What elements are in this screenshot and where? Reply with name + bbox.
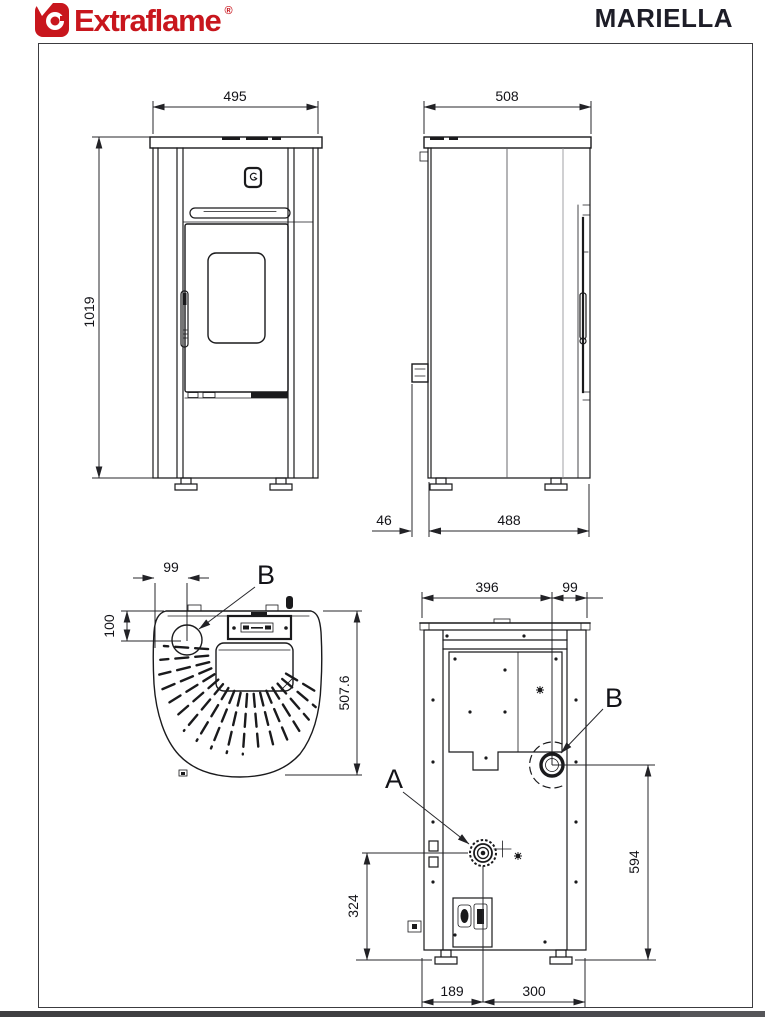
hopper-lid-detail xyxy=(219,650,292,690)
dim-edge-to-intake: 189 xyxy=(440,983,464,999)
top-tab-right xyxy=(581,623,590,630)
back-view: 396 99 B A xyxy=(345,579,656,1007)
label-flue-top: B xyxy=(257,560,275,590)
flower-screw xyxy=(536,686,544,694)
air-grille xyxy=(190,208,290,218)
foot-tab-mark xyxy=(181,772,185,775)
body-outline xyxy=(428,148,590,478)
dim-extension-lines xyxy=(153,101,318,134)
control-panel-tab xyxy=(251,612,267,616)
flower-screw xyxy=(514,852,522,860)
top-body-outline xyxy=(153,611,322,777)
dim-extension-lines xyxy=(356,853,468,960)
bottom-bar xyxy=(0,1011,765,1017)
front-view: 495 1019 xyxy=(81,88,322,490)
dim-side-depth: 488 xyxy=(497,512,521,528)
door-window xyxy=(208,253,265,343)
top-vent-slots xyxy=(222,137,281,140)
label-air-intake: A xyxy=(385,764,403,794)
adjustable-feet xyxy=(430,478,567,490)
door-latch-mid xyxy=(203,393,215,398)
dim-intake-to-edge: 300 xyxy=(522,983,546,999)
side-plate-mark xyxy=(412,924,417,929)
top-tab-left xyxy=(420,623,429,630)
side-columns xyxy=(153,148,318,478)
technical-drawing: 495 1019 508 xyxy=(0,0,765,1017)
hinge-tab xyxy=(188,605,201,611)
top-vent-slots xyxy=(430,137,458,140)
brand-badge xyxy=(245,168,261,187)
display-segments xyxy=(243,626,271,630)
top-cross-bar xyxy=(443,640,567,649)
dim-flue-offset-x: 99 xyxy=(163,559,179,575)
vent-slots xyxy=(159,646,320,754)
panel-screw xyxy=(232,626,236,630)
rear-air-intake-stub xyxy=(412,364,428,382)
screw-dots xyxy=(431,634,577,943)
adjustable-feet xyxy=(435,950,572,964)
column-bracket xyxy=(429,857,438,867)
rear-bracket xyxy=(420,152,428,161)
drawing-frame xyxy=(39,44,753,1008)
air-intake-connector xyxy=(470,840,511,866)
dim-rear-clearance: 46 xyxy=(376,512,392,528)
dim-extension-lines xyxy=(92,137,153,478)
dim-front-width: 495 xyxy=(223,88,247,104)
dim-flue-height: 594 xyxy=(626,850,642,874)
antenna-knob xyxy=(286,596,293,609)
fire-door xyxy=(185,224,288,392)
dim-left-to-flue: 396 xyxy=(475,579,499,595)
side-view: 508 46 488 xyxy=(372,88,591,537)
dim-flue-offset-y: 100 xyxy=(101,614,117,638)
hinge-tab xyxy=(266,605,278,611)
dim-extension-lines xyxy=(155,583,187,648)
door-handle-grip xyxy=(183,293,187,305)
dim-front-height: 1019 xyxy=(81,296,97,327)
leader-air-intake xyxy=(403,792,469,844)
dim-side-width: 508 xyxy=(495,88,519,104)
dim-flue-to-edge: 99 xyxy=(562,579,578,595)
door-latch-left xyxy=(188,393,198,398)
column-bracket xyxy=(429,841,438,851)
top-view: 99 100 507.6 B xyxy=(101,559,362,777)
dim-intake-height: 324 xyxy=(345,894,361,918)
adjustable-feet xyxy=(175,478,292,490)
brand-badge-glyph xyxy=(250,173,256,180)
stub-detail xyxy=(415,369,425,376)
power-inlet xyxy=(453,898,492,947)
door-latch-bar xyxy=(251,392,288,398)
panel-screw xyxy=(284,626,288,630)
dim-extension-lines xyxy=(424,101,591,134)
label-flue-back: B xyxy=(605,683,623,713)
dim-top-depth: 507.6 xyxy=(336,675,352,710)
